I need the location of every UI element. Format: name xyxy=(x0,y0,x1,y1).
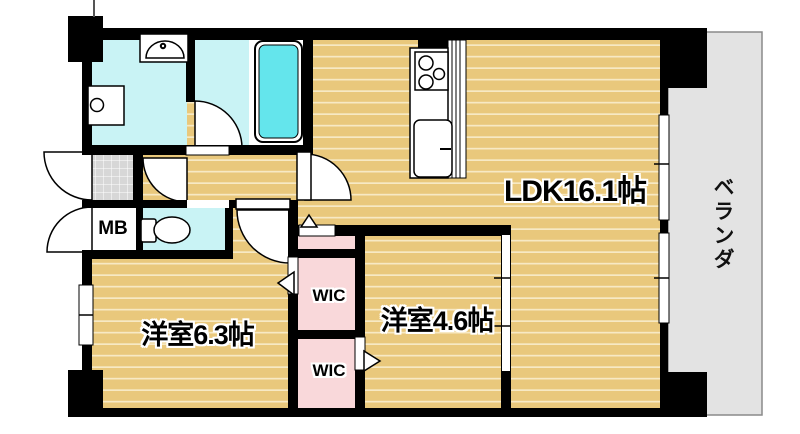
window-left xyxy=(79,285,93,345)
toilet-fixture xyxy=(141,217,190,243)
bedroom46-label: 洋室4.6帖 xyxy=(362,299,512,338)
stove-icon xyxy=(415,52,448,90)
veranda-label: ベランダ xyxy=(707,176,737,306)
floorplan-canvas: LDK16.1帖 洋室6.3帖 洋室4.6帖 WIC WIC MB ベランダ xyxy=(0,0,800,434)
washroom-sliding-door xyxy=(186,146,229,155)
meter-box-label: MB xyxy=(89,218,137,240)
wic-lower-label: WIC xyxy=(300,361,358,381)
wall-genkan-stub xyxy=(133,148,143,202)
pillar-bottom-left xyxy=(68,370,103,417)
genkan-tile xyxy=(90,150,135,202)
wall-bottom xyxy=(82,408,668,417)
wall-bath-ldk xyxy=(303,28,313,148)
pillar-top-right xyxy=(662,28,707,88)
washing-machine-pan xyxy=(88,86,124,125)
pillar-bottom-right xyxy=(662,372,707,417)
bedroom63-door-leaf xyxy=(236,199,290,209)
wall-toilet-bottom xyxy=(82,250,233,259)
entrance-door-arc xyxy=(44,152,92,200)
wic-upper-label: WIC xyxy=(300,286,358,306)
ldk-label: LDK16.1帖 xyxy=(455,166,695,210)
bathtub xyxy=(255,41,302,142)
ldk-door-leaf xyxy=(297,152,311,200)
sink-icon xyxy=(414,120,452,177)
meter-box-door-arc xyxy=(47,207,92,252)
pillar-top-left xyxy=(68,16,103,62)
toilet-door-gap xyxy=(187,200,229,208)
bedroom63-label: 洋室6.3帖 xyxy=(120,313,275,352)
kitchen-counter xyxy=(410,40,466,178)
floorplan-drawing xyxy=(0,0,800,434)
washbasin-fixture xyxy=(140,34,188,62)
